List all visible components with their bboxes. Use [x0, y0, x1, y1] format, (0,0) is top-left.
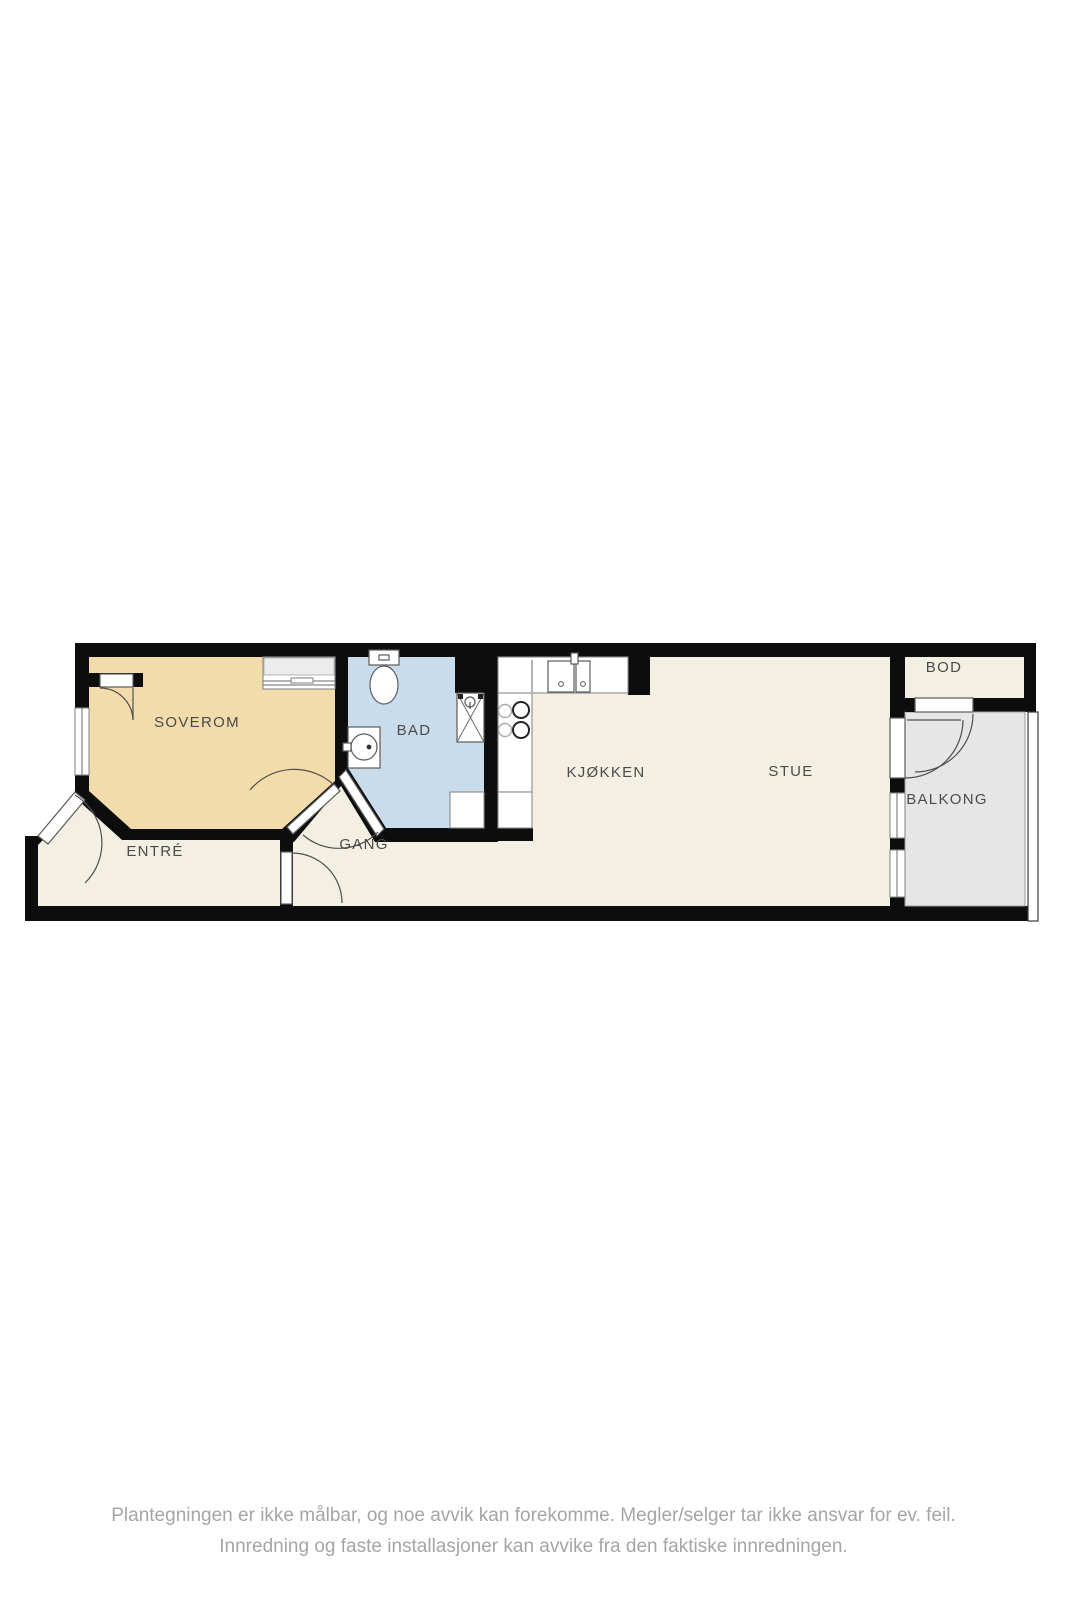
- wardrobe-niche: [263, 657, 335, 689]
- soverom-label: SOVEROM: [154, 714, 240, 731]
- washing-machine: [457, 693, 484, 742]
- wall-bad-kitchen: [484, 643, 498, 828]
- disclaimer-line-1: Plantegningen er ikke målbar, og noe avv…: [0, 1500, 1067, 1531]
- wall-bod-left-stub: [905, 698, 915, 712]
- gang-floor: [292, 842, 498, 906]
- kjokken-stue-floor: [498, 657, 890, 906]
- bod-label: BOD: [926, 659, 962, 676]
- window-stue-balkong-1: [890, 793, 905, 838]
- balcony-railing: [1028, 712, 1038, 921]
- balkong-floor: [905, 712, 1025, 906]
- shower-cabinet: [450, 792, 484, 828]
- window-soverom-left: [75, 708, 89, 775]
- toilet: [369, 650, 399, 704]
- entre-label: ENTRÉ: [126, 843, 183, 860]
- floor-plan-page: { "rooms": { "soverom": { "label": "SOVE…: [0, 0, 1067, 1600]
- disclaimer-line-2: Innredning og faste installasjoner kan a…: [0, 1531, 1067, 1562]
- bad-label: BAD: [397, 722, 432, 739]
- floor-plan-drawing: SOVEROM BAD ENTRÉ GANG KJØKKEN STUE BOD …: [0, 0, 1067, 1600]
- window-stue-balkong-2: [890, 850, 905, 897]
- gang-label: GANG: [339, 836, 388, 853]
- kjokken-label: KJØKKEN: [566, 764, 645, 781]
- disclaimer: Plantegningen er ikke målbar, og noe avv…: [0, 1500, 1067, 1562]
- kitchen-cabinet-low: [498, 792, 532, 828]
- wall-kitchen-stue-stub: [628, 643, 650, 695]
- kitchen-counter-left: [498, 693, 532, 792]
- bod-floor: [905, 657, 1024, 698]
- balkong-label: BALKONG: [906, 791, 988, 808]
- bathroom-sink: [343, 727, 380, 768]
- stue-label: STUE: [768, 763, 813, 780]
- wall-bad-bottom: [377, 828, 533, 841]
- wall-bad-top-chunk: [455, 643, 484, 693]
